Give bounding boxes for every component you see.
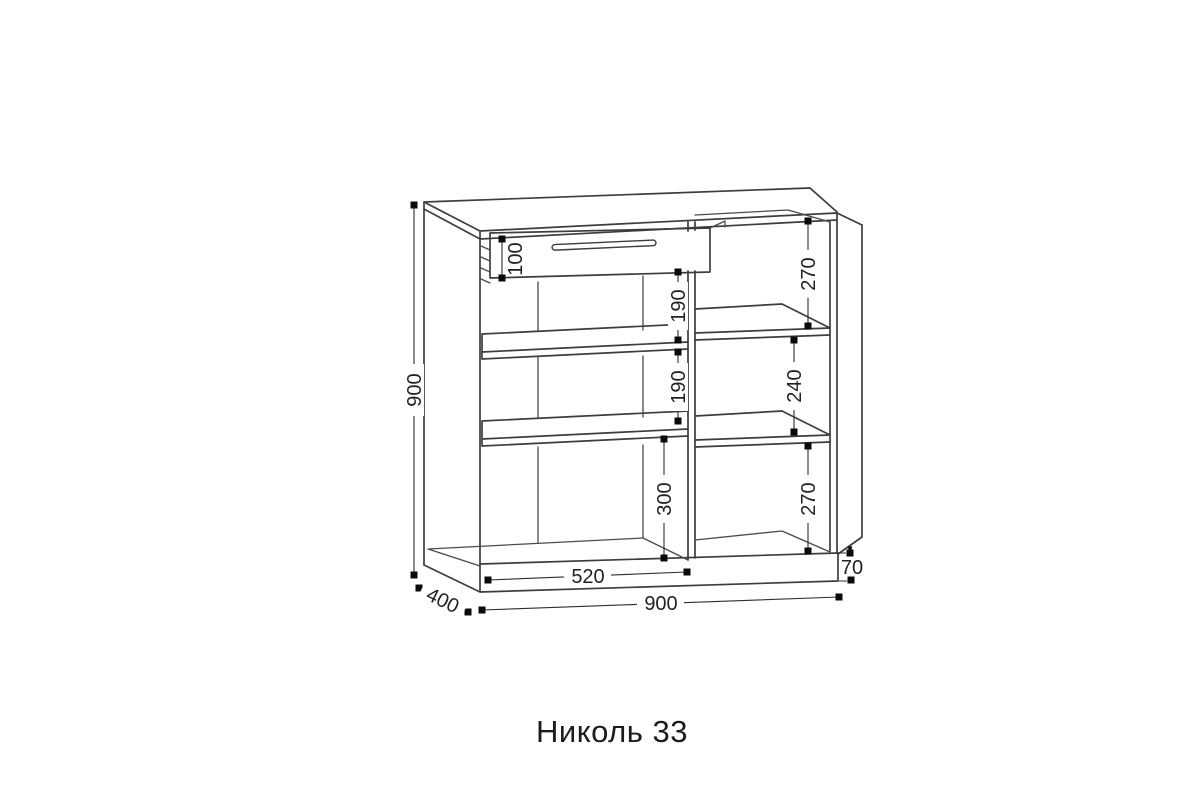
dim-left-opening-middle: 190 — [668, 370, 690, 403]
furniture-dimension-drawing: 900 100 190 190 300 270 240 270 520 900 … — [0, 0, 1200, 798]
right-shelf-lower — [695, 411, 830, 447]
dim-right-opening-bottom: 270 — [798, 482, 820, 515]
dim-right-opening-middle: 240 — [784, 369, 806, 402]
bottom-floor-edges — [428, 531, 830, 566]
technical-drawing-page: 900 100 190 190 300 270 240 270 520 900 … — [0, 0, 1200, 798]
dim-overall-width: 900 — [644, 593, 677, 615]
left-shelf-upper — [482, 324, 688, 359]
dim-plinth-height: 70 — [841, 557, 863, 579]
right-shelf-upper — [695, 304, 830, 340]
left-shelf-lower — [482, 411, 688, 446]
dim-drawer-height: 100 — [505, 242, 527, 275]
dim-right-opening-top: 270 — [798, 257, 820, 290]
back-panel-seam-lines — [538, 276, 643, 543]
back-panel-seams — [538, 276, 643, 543]
dim-left-opening-bottom: 300 — [654, 482, 676, 515]
drawer-slide-rails — [481, 246, 490, 283]
dim-left-opening-top: 190 — [668, 289, 690, 322]
dim-left-section-width: 520 — [571, 566, 604, 588]
drawer-handle — [552, 240, 656, 250]
depth-label-group: 400 — [416, 579, 470, 622]
shelves-left — [482, 324, 688, 446]
dim-overall-height: 900 — [404, 373, 426, 406]
top-panel — [424, 188, 862, 239]
product-title: Николь 33 — [536, 714, 688, 749]
